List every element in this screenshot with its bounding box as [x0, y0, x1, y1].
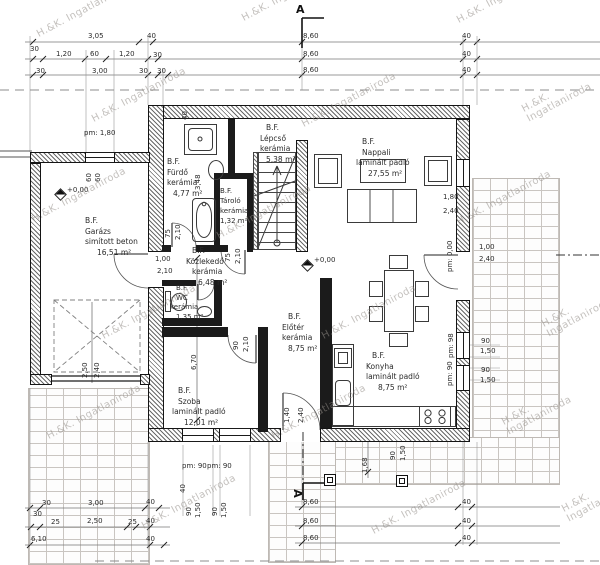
dim: 40	[147, 33, 156, 41]
wall-right-1	[456, 119, 470, 160]
dim: 40	[462, 499, 471, 507]
terrace-post-1-core	[327, 477, 333, 483]
kitchen-appliance-inner	[338, 352, 348, 364]
dim: 2,40	[298, 407, 306, 423]
dining-chair-right-2	[415, 306, 429, 322]
room-label-eloter: B.F. Előtér kerámia 8,75 m²	[282, 312, 317, 354]
room-label-furdo: B.F. Fürdő kerámia 4,77 m²	[167, 157, 202, 199]
dim: 2,10	[157, 268, 173, 276]
dining-chair-bottom	[389, 333, 408, 347]
dim: 40	[462, 67, 471, 75]
room-name: Garázs	[85, 227, 138, 238]
dim-parapet-room-2: pm: 90	[207, 463, 232, 471]
dim-parapet-kitchen-2: pm: 90	[447, 361, 455, 386]
dim: 1,00	[479, 244, 495, 252]
dim: 8,60	[303, 499, 319, 507]
wall-bottom-kitchen	[320, 428, 470, 442]
room-finish: kerámia	[260, 144, 295, 155]
dim: 90	[481, 338, 490, 346]
room-finish: laminált padló	[366, 372, 420, 383]
dim: 90	[212, 507, 220, 516]
kitchen-window-2	[456, 366, 470, 390]
terrace-post-2-core	[399, 478, 405, 484]
wall-garage-bottom-b	[140, 374, 150, 385]
floor-plan-canvas: +0,00 +0,00 A A 3,05 40 8,60 40 30 1,20 …	[0, 0, 600, 565]
dim: 40	[462, 518, 471, 526]
dim: 40	[182, 111, 190, 120]
section-marker-bottom: A	[291, 489, 304, 498]
dim: 8,60	[303, 51, 319, 59]
dim: 1,00	[155, 256, 171, 264]
room-area: 8,75 m²	[378, 383, 420, 394]
dim: 2,10	[235, 248, 243, 264]
room-name: Fürdő	[167, 168, 202, 179]
room-area: 1,35 m²	[176, 313, 203, 323]
dim: 8,60	[303, 33, 319, 41]
dim: 30	[157, 68, 166, 76]
level-garage: +0,00	[67, 187, 88, 195]
dim: 3,00	[92, 68, 108, 76]
dim: 75	[165, 229, 173, 238]
room-name: WC	[176, 294, 203, 304]
room-label-szoba: B.F. Szoba laminált padló 12,01 m²	[172, 386, 226, 428]
wall-left-upper	[148, 105, 164, 252]
dim: 3,00	[88, 500, 104, 508]
room-name: Közlekedő	[186, 257, 227, 268]
dim: 2,40	[443, 208, 459, 216]
wall-garage-left	[30, 163, 41, 385]
room-floor: B.F.	[362, 137, 410, 148]
room-area: 5,38 m²	[266, 155, 295, 166]
armchair-right-cushion	[428, 160, 448, 182]
dim: 90	[233, 341, 241, 350]
room-name: Konyha	[366, 362, 420, 373]
kitchen-window-1	[456, 333, 470, 358]
garage-window	[86, 152, 114, 163]
dim: 40	[146, 499, 155, 507]
dim: 6,10	[31, 536, 47, 544]
room-label-garazs: B.F. Garázs simított beton 16,51 m²	[85, 216, 138, 258]
dim: 1,50	[195, 502, 203, 518]
room-floor: B.F.	[220, 186, 248, 196]
bathtub	[192, 198, 216, 242]
garage-door-x	[54, 300, 140, 372]
wall-bath-east	[228, 119, 235, 173]
room-name: Lépcső	[260, 134, 295, 145]
dim: 1,50	[480, 348, 496, 356]
linework-layer	[0, 0, 600, 565]
room-name: Előtér	[282, 323, 317, 334]
room-floor: B.F.	[288, 312, 317, 323]
dim: 2,50	[87, 518, 103, 526]
dim: 2,10	[243, 336, 251, 352]
dim: 1,68	[362, 457, 370, 473]
dim: 2,50	[82, 362, 90, 378]
room-finish: kerámia	[170, 303, 203, 313]
wall-garage-top-b	[114, 152, 150, 163]
dim: 30	[153, 52, 162, 60]
room-label-wc: B.F. WC kerámia 1,35 m²	[170, 284, 203, 322]
level-living: +0,00	[314, 257, 335, 265]
dim: 30	[36, 68, 45, 76]
dim: 1,50	[480, 377, 496, 385]
dim-parapet-garage: pm: 1,80	[84, 130, 115, 138]
wall-room-north	[162, 327, 228, 337]
room-area: 1,32 m²	[220, 216, 248, 226]
dim: 40	[462, 33, 471, 41]
dim: 30	[139, 68, 148, 76]
bathtub-inner	[196, 202, 212, 238]
dim: 40	[462, 51, 471, 59]
dim: 30	[42, 500, 51, 508]
dim: 1,20	[56, 51, 72, 59]
dim-parapet-terrace-door: pm: 0,00	[447, 241, 455, 272]
room-floor: B.F.	[266, 123, 295, 134]
section-marker-top: A	[296, 3, 305, 16]
dining-chair-left-1	[369, 281, 383, 297]
room-area: 27,55 m²	[368, 169, 410, 180]
dim-parapet-kitchen-1: pm: 98	[448, 333, 456, 358]
armchair-left	[314, 154, 342, 188]
dim: 30	[30, 46, 39, 54]
room-finish: kerámia	[192, 267, 227, 278]
wall-garage-top-a	[30, 152, 86, 163]
wall-garage-bottom-a	[30, 374, 52, 385]
terrace-post-2	[396, 475, 408, 487]
room-name: Szoba	[178, 397, 226, 408]
dim: 1,50	[400, 445, 408, 461]
room-area: 4,77 m²	[173, 189, 202, 200]
washbasin-bath	[208, 160, 224, 180]
dim: 40	[146, 536, 155, 544]
dim: 1,80	[443, 194, 459, 202]
dim: 8,60	[303, 535, 319, 543]
kitchen-appliance	[334, 348, 352, 368]
room-floor: B.F.	[178, 386, 226, 397]
dim: 30	[33, 511, 42, 519]
dim: 90	[390, 451, 398, 460]
dim: 1,20	[119, 51, 135, 59]
room-label-nappali: B.F. Nappali laminált padló 27,55 m²	[356, 137, 410, 179]
living-window	[456, 160, 470, 186]
dim: 2,40	[479, 256, 495, 264]
room-area: 16,51 m²	[97, 248, 138, 259]
stair-flight	[258, 152, 296, 250]
room-finish: laminált padló	[172, 407, 226, 418]
dim: 8,60	[303, 518, 319, 526]
dim: 60	[86, 173, 94, 182]
room-area: 8,75 m²	[288, 344, 317, 355]
room-window-2	[220, 428, 250, 442]
wall-right-4	[456, 358, 470, 366]
room-floor: B.F.	[176, 284, 203, 294]
dim: 60	[90, 51, 99, 59]
terrace-post-1	[324, 474, 336, 486]
dim: 2,40	[94, 362, 102, 378]
armchair-right	[424, 156, 452, 186]
dining-chair-left-2	[369, 306, 383, 322]
room-label-kozlekedo: B.F. Közlekedő kerámia 6,48 m²	[186, 246, 227, 288]
room-floor: B.F.	[192, 246, 227, 257]
wall-stair-living	[296, 140, 308, 252]
wall-left-lower	[148, 287, 164, 442]
dim: 8,60	[303, 67, 319, 75]
dim: 60	[95, 173, 103, 182]
dining-table	[384, 270, 414, 332]
dim: 90	[186, 507, 194, 516]
room-finish: kerámia	[282, 333, 317, 344]
kitchen-sink	[335, 380, 351, 406]
dining-chair-top	[389, 255, 408, 269]
dim: 40	[146, 518, 155, 526]
dim: 40	[180, 484, 188, 493]
shower-tray	[184, 124, 217, 155]
wall-bottom-room-b	[213, 428, 220, 442]
wall-right-3	[456, 300, 470, 333]
room-name: Tároló	[220, 196, 248, 206]
wall-bottom-room-a	[148, 428, 183, 442]
room-label-tarolo: B.F. Tároló kerámia 1,32 m²	[220, 186, 248, 226]
room-label-konyha: B.F. Konyha laminált padló 8,75 m²	[366, 351, 420, 393]
wall-bath-south-a	[162, 245, 171, 252]
dim: 1,40	[284, 407, 292, 423]
room-finish: kerámia	[220, 206, 248, 216]
dim: 40	[462, 535, 471, 543]
dim-parapet-room-1: pm: 90	[182, 463, 207, 471]
dining-chair-right-1	[415, 281, 429, 297]
wall-kitchen-west	[320, 278, 332, 428]
room-area: 12,01 m²	[184, 418, 226, 429]
armchair-left-cushion	[318, 158, 338, 184]
room-window-1	[183, 428, 213, 442]
room-name: Nappali	[362, 148, 410, 159]
room-floor: B.F.	[85, 216, 138, 227]
dim: 6,70	[191, 354, 199, 370]
room-finish: simított beton	[85, 237, 138, 248]
dim: 25	[128, 519, 137, 527]
sofa	[347, 189, 417, 223]
wall-top	[148, 105, 470, 119]
dim: 1,50	[221, 502, 229, 518]
fence-lines	[0, 151, 32, 157]
shower-inner	[188, 128, 213, 151]
wall-room-east	[258, 327, 268, 432]
stove	[419, 406, 451, 427]
room-floor: B.F.	[167, 157, 202, 168]
dim: 90	[481, 367, 490, 375]
room-finish: kerámia	[167, 178, 202, 189]
room-finish: laminált padló	[356, 158, 410, 169]
dim: 3,05	[88, 33, 104, 41]
room-floor: B.F.	[372, 351, 420, 362]
dim: 25	[51, 519, 60, 527]
room-label-lepcso: B.F. Lépcső kerámia 5,38 m²	[260, 123, 295, 165]
dim: 2,10	[175, 224, 183, 240]
